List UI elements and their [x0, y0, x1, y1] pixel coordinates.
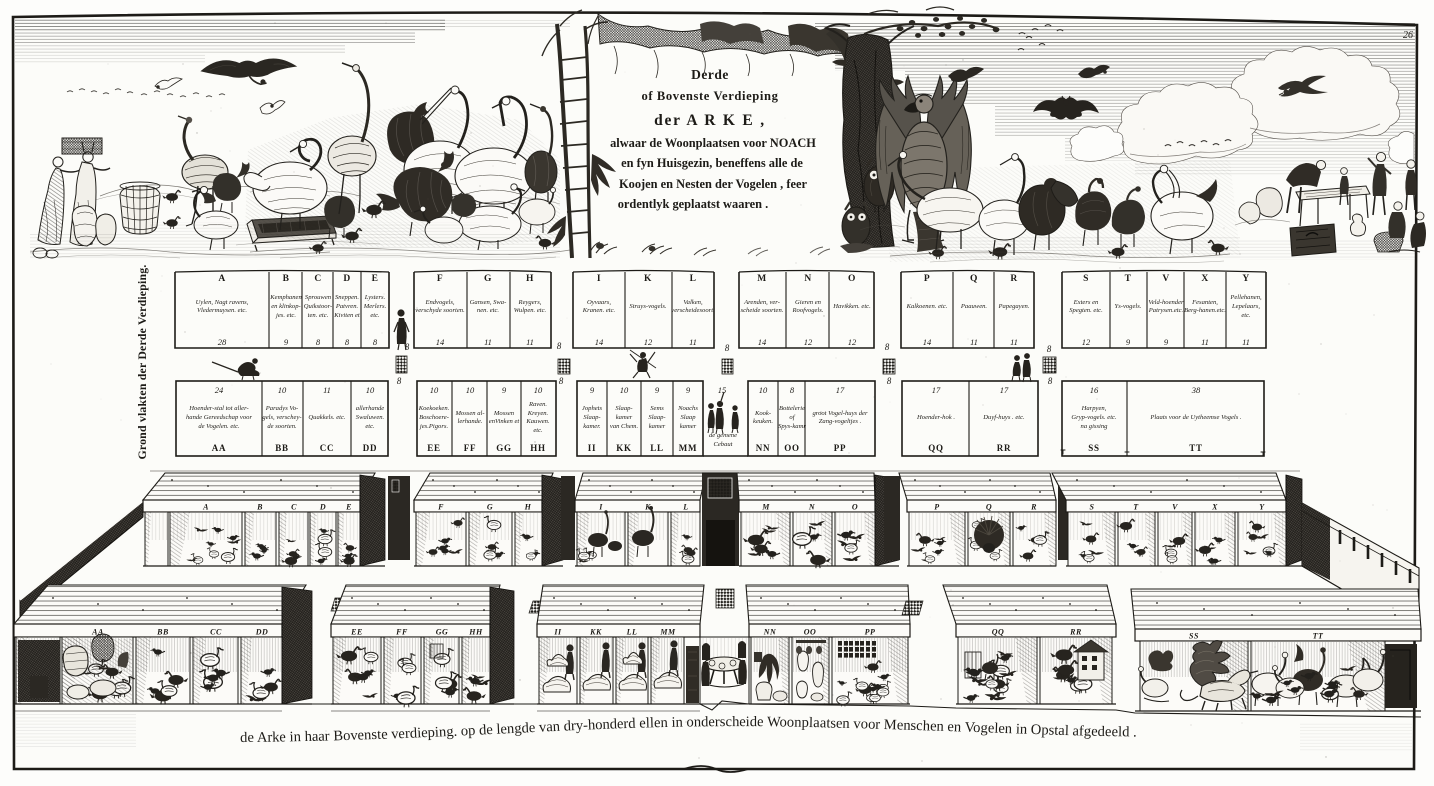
- svg-text:Duyf-huys . etc.: Duyf-huys . etc.: [982, 414, 1025, 421]
- svg-text:M: M: [761, 503, 770, 512]
- svg-text:10: 10: [759, 385, 768, 395]
- svg-text:NN: NN: [763, 628, 777, 637]
- svg-text:Wulpen. etc.: Wulpen. etc.: [514, 307, 547, 314]
- svg-text:L: L: [682, 503, 688, 512]
- svg-text:C: C: [314, 274, 321, 284]
- svg-text:EE: EE: [427, 443, 441, 453]
- svg-text:RR: RR: [997, 443, 1012, 453]
- svg-text:de soorten.: de soorten.: [267, 423, 297, 430]
- svg-text:8: 8: [557, 341, 562, 351]
- svg-text:14: 14: [758, 337, 767, 347]
- svg-text:Spegten. etc.: Spegten. etc.: [1069, 307, 1103, 314]
- svg-text:G: G: [487, 503, 493, 512]
- svg-text:Patrysen.etc.: Patrysen.etc.: [1148, 307, 1184, 314]
- svg-text:12: 12: [644, 337, 653, 347]
- svg-text:10: 10: [620, 385, 629, 395]
- svg-text:FF: FF: [464, 443, 477, 453]
- svg-text:H: H: [524, 503, 532, 512]
- svg-text:ordentlyk geplaatst waaren .: ordentlyk geplaatst waaren .: [618, 197, 769, 211]
- svg-text:Bottelerie: Bottelerie: [779, 405, 805, 412]
- svg-text:Valken,: Valken,: [683, 299, 703, 306]
- svg-text:P: P: [924, 274, 930, 284]
- svg-text:Quakkels. etc.: Quakkels. etc.: [308, 414, 346, 421]
- svg-text:T: T: [1125, 274, 1132, 284]
- svg-text:11: 11: [1010, 337, 1018, 347]
- svg-text:OO: OO: [784, 443, 800, 453]
- svg-text:II: II: [553, 628, 562, 637]
- svg-text:etc.: etc.: [1241, 312, 1251, 319]
- svg-text:CC: CC: [210, 628, 222, 637]
- svg-text:verschyde soorten.: verschyde soorten.: [415, 307, 465, 314]
- svg-text:10: 10: [430, 385, 439, 395]
- svg-text:M: M: [757, 274, 766, 284]
- svg-text:R: R: [1030, 503, 1037, 512]
- svg-text:alwaar de Woonplaatsen voor NO: alwaar de Woonplaatsen voor NOACH: [610, 136, 816, 150]
- svg-text:D: D: [343, 274, 350, 284]
- svg-text:LL: LL: [626, 628, 638, 637]
- svg-text:Zang-vogeltjes .: Zang-vogeltjes .: [819, 418, 862, 425]
- svg-text:14: 14: [923, 337, 932, 347]
- svg-text:8: 8: [1048, 376, 1053, 386]
- svg-text:Y: Y: [1259, 503, 1265, 512]
- svg-text:Gryp-vogels. etc.: Gryp-vogels. etc.: [1071, 414, 1117, 421]
- svg-text:Hoender-hok .: Hoender-hok .: [916, 414, 955, 421]
- svg-text:Berg-hanen.etc.: Berg-hanen.etc.: [1184, 307, 1226, 314]
- svg-text:jes. etc.: jes. etc.: [275, 312, 296, 319]
- svg-text:K: K: [644, 274, 652, 284]
- svg-text:Kranen. etc.: Kranen. etc.: [582, 307, 616, 314]
- svg-text:Mossen: Mossen: [493, 410, 515, 417]
- svg-text:Y: Y: [1242, 274, 1249, 284]
- svg-text:Fesanten,: Fesanten,: [1191, 299, 1218, 306]
- svg-text:12: 12: [848, 337, 857, 347]
- svg-text:nen. etc.: nen. etc.: [477, 307, 500, 314]
- svg-text:QQ: QQ: [928, 443, 944, 453]
- svg-text:8: 8: [725, 343, 730, 353]
- svg-text:of Bovenste Verdieping: of Bovenste Verdieping: [641, 89, 778, 103]
- svg-text:10: 10: [278, 385, 287, 395]
- svg-text:Sneppen.: Sneppen.: [335, 294, 359, 301]
- svg-text:Struys-vogels.: Struys-vogels.: [629, 303, 667, 310]
- svg-text:N: N: [808, 503, 816, 512]
- svg-text:15: 15: [718, 385, 727, 395]
- svg-text:R: R: [1010, 274, 1017, 284]
- svg-text:X: X: [1211, 503, 1218, 512]
- svg-text:F: F: [437, 503, 444, 512]
- svg-text:Reygers,: Reygers,: [518, 299, 542, 306]
- svg-text:Sprouwen: Sprouwen: [305, 294, 332, 301]
- svg-text:D: D: [319, 503, 326, 512]
- svg-text:Vledermuysen. etc.: Vledermuysen. etc.: [197, 307, 247, 314]
- svg-text:Havikken. etc.: Havikken. etc.: [832, 303, 871, 310]
- svg-text:der A R K E ,: der A R K E ,: [654, 112, 766, 129]
- svg-text:Lepelaars,: Lepelaars,: [1231, 303, 1260, 310]
- svg-text:van Chem.: van Chem.: [610, 423, 639, 430]
- svg-text:PP: PP: [865, 628, 876, 637]
- svg-text:8: 8: [397, 376, 402, 386]
- svg-text:HH: HH: [468, 628, 483, 637]
- svg-text:Kemphanen: Kemphanen: [269, 294, 302, 301]
- svg-text:I: I: [598, 503, 603, 512]
- svg-text:MM: MM: [659, 628, 676, 637]
- svg-text:kamer.: kamer.: [583, 423, 601, 430]
- svg-text:Harpyen,: Harpyen,: [1081, 405, 1107, 412]
- svg-text:N: N: [804, 274, 811, 284]
- svg-text:10: 10: [366, 385, 375, 395]
- svg-text:A: A: [202, 503, 209, 512]
- svg-text:GG: GG: [496, 443, 512, 453]
- svg-text:S: S: [1090, 503, 1095, 512]
- svg-text:Noachs: Noachs: [677, 405, 698, 412]
- svg-text:Swaluwen.: Swaluwen.: [356, 414, 385, 421]
- svg-text:26: 26: [1403, 30, 1413, 41]
- svg-text:LL: LL: [650, 443, 664, 453]
- svg-text:Raven.: Raven.: [528, 401, 547, 408]
- svg-text:Koekoeken.: Koekoeken.: [418, 405, 450, 412]
- svg-text:Q: Q: [986, 503, 992, 512]
- svg-text:Kiviten et: Kiviten et: [333, 312, 360, 319]
- svg-text:SS: SS: [1189, 632, 1199, 641]
- svg-text:Paauwen.: Paauwen.: [960, 303, 988, 310]
- svg-text:Oyvaars,: Oyvaars,: [587, 299, 611, 306]
- svg-text:17: 17: [836, 385, 845, 395]
- svg-text:RR: RR: [1069, 628, 1082, 637]
- svg-text:Jophets: Jophets: [582, 405, 603, 412]
- svg-text:8: 8: [887, 376, 892, 386]
- svg-text:Ys-vogels.: Ys-vogels.: [1115, 303, 1142, 310]
- svg-text:B: B: [256, 503, 263, 512]
- svg-text:Kreyen.: Kreyen.: [527, 410, 549, 417]
- svg-text:V: V: [1162, 274, 1169, 284]
- svg-text:OO: OO: [804, 628, 817, 637]
- svg-text:TT: TT: [1313, 632, 1324, 641]
- svg-text:Exters en: Exters en: [1073, 299, 1099, 306]
- svg-text:Gansen, Swa-: Gansen, Swa-: [470, 299, 507, 306]
- svg-text:Slaap: Slaap: [680, 414, 696, 421]
- svg-text:Mossen al-: Mossen al-: [454, 410, 484, 417]
- svg-text:TT: TT: [1189, 443, 1203, 453]
- svg-text:I: I: [597, 274, 601, 284]
- svg-text:X: X: [1201, 274, 1208, 284]
- svg-text:14: 14: [436, 337, 445, 347]
- svg-text:allerhande: allerhande: [356, 405, 385, 412]
- svg-text:A: A: [218, 274, 225, 284]
- svg-text:11: 11: [526, 337, 534, 347]
- svg-text:BB: BB: [156, 628, 169, 637]
- svg-text:12: 12: [804, 337, 813, 347]
- svg-text:KK: KK: [589, 628, 602, 637]
- svg-text:CC: CC: [320, 443, 335, 453]
- svg-text:QQ: QQ: [992, 628, 1005, 637]
- svg-text:ten. etc.: ten. etc.: [308, 312, 329, 319]
- svg-text:verscheidesoort.: verscheidesoort.: [671, 307, 715, 314]
- svg-text:hande Gereedschap voor: hande Gereedschap voor: [186, 414, 252, 421]
- svg-text:Paradys Vo-: Paradys Vo-: [265, 405, 298, 412]
- svg-text:Slaap-: Slaap-: [615, 405, 632, 412]
- svg-text:Boschoere-: Boschoere-: [419, 414, 449, 421]
- svg-text:16: 16: [1090, 385, 1099, 395]
- svg-text:11: 11: [323, 385, 331, 395]
- svg-text:en klinkop-: en klinkop-: [271, 303, 300, 310]
- svg-text:lerhande.: lerhande.: [458, 418, 483, 425]
- svg-text:HH: HH: [530, 443, 546, 453]
- svg-text:11: 11: [970, 337, 978, 347]
- svg-text:gels, verschey-: gels, verschey-: [262, 414, 301, 421]
- svg-text:10: 10: [534, 385, 543, 395]
- svg-text:C: C: [291, 503, 297, 512]
- svg-text:Kalkoenen. etc.: Kalkoenen. etc.: [906, 303, 948, 310]
- svg-text:Sems: Sems: [650, 405, 664, 412]
- svg-text:E: E: [345, 503, 352, 512]
- svg-text:de Vogelen. etc.: de Vogelen. etc.: [198, 423, 240, 430]
- svg-text:28: 28: [218, 337, 227, 347]
- svg-text:17: 17: [932, 385, 941, 395]
- svg-text:etc.: etc.: [365, 423, 375, 430]
- svg-text:scheide soorten.: scheide soorten.: [741, 307, 784, 314]
- svg-text:Patvren.: Patvren.: [335, 303, 359, 310]
- svg-text:Kook-: Kook-: [754, 410, 771, 417]
- svg-text:V: V: [1172, 503, 1178, 512]
- svg-text:F: F: [437, 274, 443, 284]
- svg-text:Gieren en: Gieren en: [795, 299, 822, 306]
- svg-text:O: O: [848, 274, 856, 284]
- svg-text:groot Vogel-huys der: groot Vogel-huys der: [812, 410, 867, 417]
- svg-text:jes.Pigors.: jes.Pigors.: [419, 423, 449, 430]
- svg-text:24: 24: [215, 385, 224, 395]
- svg-text:kamer: kamer: [616, 414, 633, 421]
- svg-text:DD: DD: [255, 628, 269, 637]
- svg-text:na gissing: na gissing: [1081, 423, 1109, 430]
- svg-text:8: 8: [885, 342, 890, 352]
- svg-text:PP: PP: [834, 443, 847, 453]
- svg-text:Cebaut: Cebaut: [713, 441, 732, 448]
- svg-text:Koojen en Nesten der Vogelen ,: Koojen en Nesten der Vogelen , feer: [619, 177, 808, 191]
- svg-text:Arenden, ver-: Arenden, ver-: [743, 299, 780, 306]
- svg-text:8: 8: [1047, 344, 1052, 354]
- svg-text:L: L: [690, 274, 697, 284]
- svg-text:11: 11: [484, 337, 492, 347]
- svg-text:Veld-hoender: Veld-hoender: [1148, 299, 1184, 306]
- svg-text:EE: EE: [350, 628, 363, 637]
- svg-text:Plaats voor de Uytheemse Vogel: Plaats voor de Uytheemse Vogels .: [1149, 414, 1242, 421]
- svg-text:GG: GG: [436, 628, 449, 637]
- svg-text:38: 38: [1191, 385, 1201, 395]
- svg-text:Lysters.: Lysters.: [364, 294, 386, 301]
- svg-text:8: 8: [559, 376, 564, 386]
- svg-text:17: 17: [1000, 385, 1009, 395]
- svg-text:NN: NN: [756, 443, 771, 453]
- svg-text:12: 12: [1082, 337, 1091, 347]
- svg-text:Papegayen.: Papegayen.: [998, 303, 1030, 310]
- svg-text:KK: KK: [616, 443, 632, 453]
- svg-text:Roofvogels.: Roofvogels.: [792, 307, 824, 314]
- svg-text:enVinken et: enVinken et: [489, 418, 520, 425]
- svg-text:Uylen, Nagt ravens,: Uylen, Nagt ravens,: [196, 299, 249, 306]
- svg-text:Quikstoor-: Quikstoor-: [304, 303, 332, 310]
- svg-text:BB: BB: [275, 443, 289, 453]
- svg-text:Pellehanen,: Pellehanen,: [1229, 294, 1262, 301]
- svg-text:Grond vlakten der Derde Verdie: Grond vlakten der Derde Verdieping.: [135, 264, 149, 459]
- svg-text:B: B: [283, 274, 290, 284]
- svg-text:Endvogels,: Endvogels,: [424, 299, 454, 306]
- svg-text:Hoender-stal tot aller-: Hoender-stal tot aller-: [188, 405, 248, 412]
- svg-text:etc.: etc.: [370, 312, 380, 319]
- svg-text:S: S: [1083, 274, 1089, 284]
- svg-text:MM: MM: [679, 443, 698, 453]
- svg-text:P: P: [934, 503, 939, 512]
- svg-text:AA: AA: [212, 443, 227, 453]
- svg-text:II: II: [588, 443, 597, 453]
- svg-text:kamer: kamer: [649, 423, 666, 430]
- svg-text:11: 11: [1242, 337, 1250, 347]
- svg-text:FF: FF: [395, 628, 408, 637]
- svg-text:14: 14: [595, 337, 604, 347]
- svg-text:Spys-kamr: Spys-kamr: [778, 423, 806, 430]
- svg-text:O: O: [852, 503, 858, 512]
- svg-text:Derde: Derde: [691, 67, 729, 82]
- svg-text:G: G: [484, 274, 492, 284]
- svg-text:kamer: kamer: [680, 423, 697, 430]
- svg-text:T: T: [1133, 503, 1139, 512]
- svg-text:Kauwen.: Kauwen.: [525, 418, 550, 425]
- svg-text:keuken.: keuken.: [753, 418, 773, 425]
- svg-text:en fyn Huisgezin, beneffens al: en fyn Huisgezin, beneffens alle de: [621, 156, 803, 170]
- svg-text:Slaap-: Slaap-: [648, 414, 665, 421]
- svg-text:SS: SS: [1088, 443, 1100, 453]
- svg-text:11: 11: [1201, 337, 1209, 347]
- svg-text:H: H: [526, 274, 534, 284]
- svg-text:10: 10: [466, 385, 475, 395]
- svg-text:Q: Q: [970, 274, 978, 284]
- svg-text:etc.: etc.: [533, 427, 543, 434]
- svg-text:Merlers.: Merlers.: [363, 303, 387, 310]
- svg-text:Slaap-: Slaap-: [583, 414, 600, 421]
- svg-text:E: E: [372, 274, 379, 284]
- svg-text:11: 11: [689, 337, 697, 347]
- svg-text:DD: DD: [363, 443, 378, 453]
